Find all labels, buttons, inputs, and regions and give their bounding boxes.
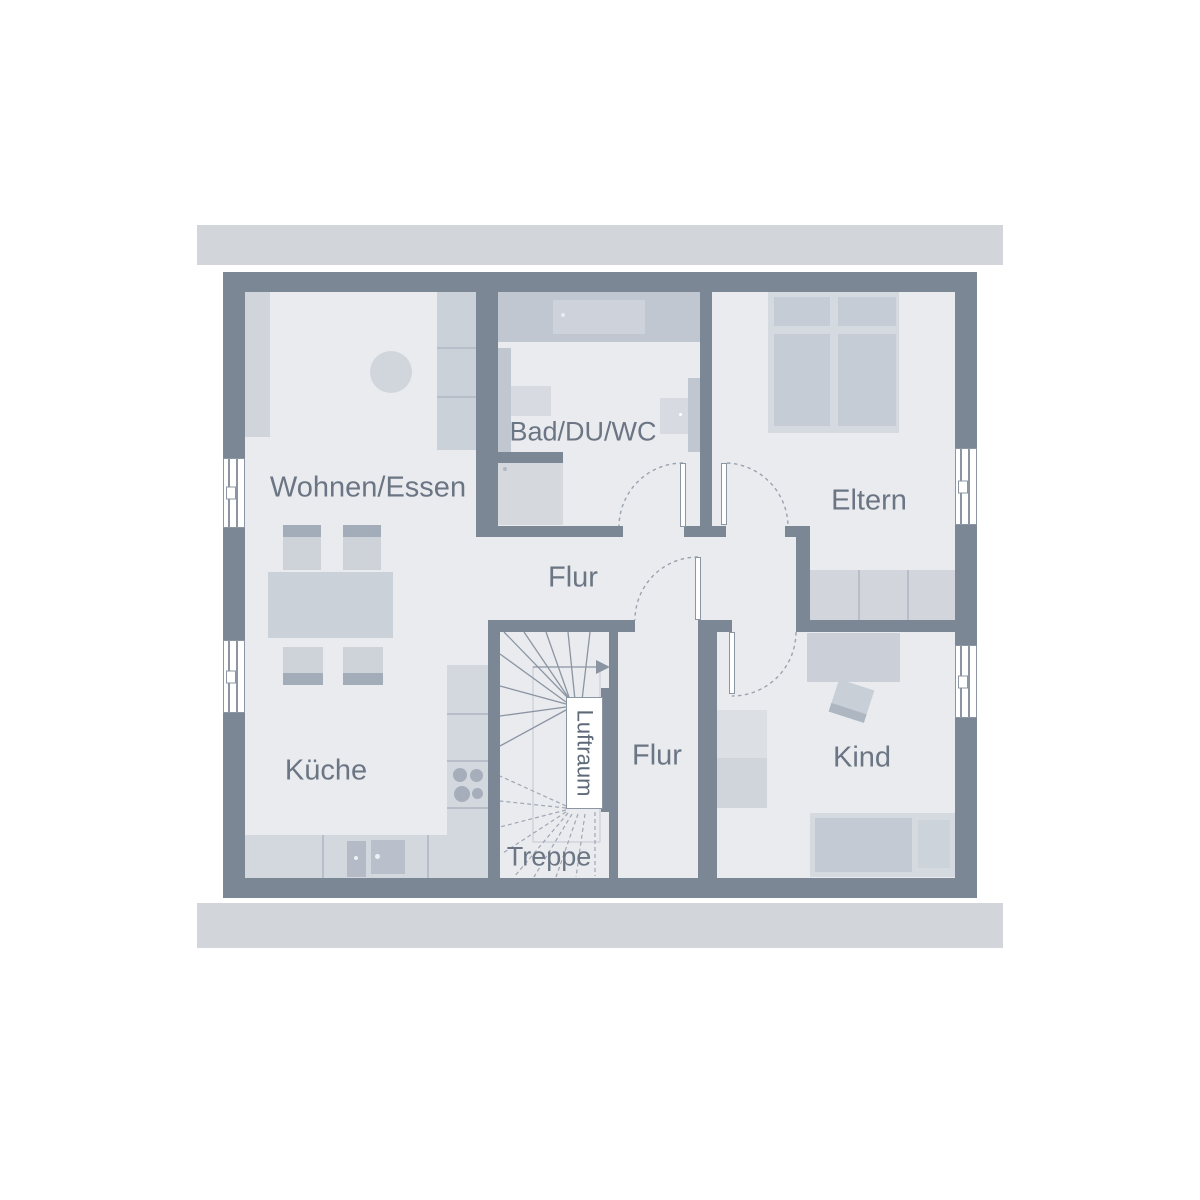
room-label-treppe: Treppe xyxy=(507,844,592,871)
door-leaf-kind xyxy=(729,632,735,694)
door-swing-arc-eltern xyxy=(727,463,788,526)
door-swings xyxy=(619,463,796,696)
door-leaf-flur xyxy=(695,557,701,620)
room-label-kind: Kind xyxy=(833,744,891,773)
door-swing-arc-bad xyxy=(619,463,683,526)
stair-direction-arrow xyxy=(596,660,610,674)
door-leaf-eltern xyxy=(721,463,727,525)
room-label-flur-oben: Flur xyxy=(548,564,598,593)
room-label-bad: Bad/DU/WC xyxy=(509,419,656,446)
luftraum-label-box: Luftraum xyxy=(566,697,603,809)
floor-plan-canvas: Luftraum Wohnen/Essen Bad/DU/WC Eltern F… xyxy=(0,0,1200,1200)
plan-linework xyxy=(0,0,1200,1200)
room-label-flur-unten: Flur xyxy=(632,742,682,771)
door-swing-arc-flur xyxy=(635,557,698,620)
stair-tread xyxy=(582,632,590,700)
stair-tread xyxy=(524,632,570,700)
room-label-eltern: Eltern xyxy=(831,487,907,516)
door-leaf-bad xyxy=(680,463,686,527)
room-label-kueche: Küche xyxy=(285,757,367,786)
room-label-wohnen-essen: Wohnen/Essen xyxy=(270,474,466,503)
luftraum-label: Luftraum xyxy=(572,710,598,797)
stair-tread xyxy=(568,632,575,700)
door-swing-arc-kind xyxy=(732,632,796,696)
